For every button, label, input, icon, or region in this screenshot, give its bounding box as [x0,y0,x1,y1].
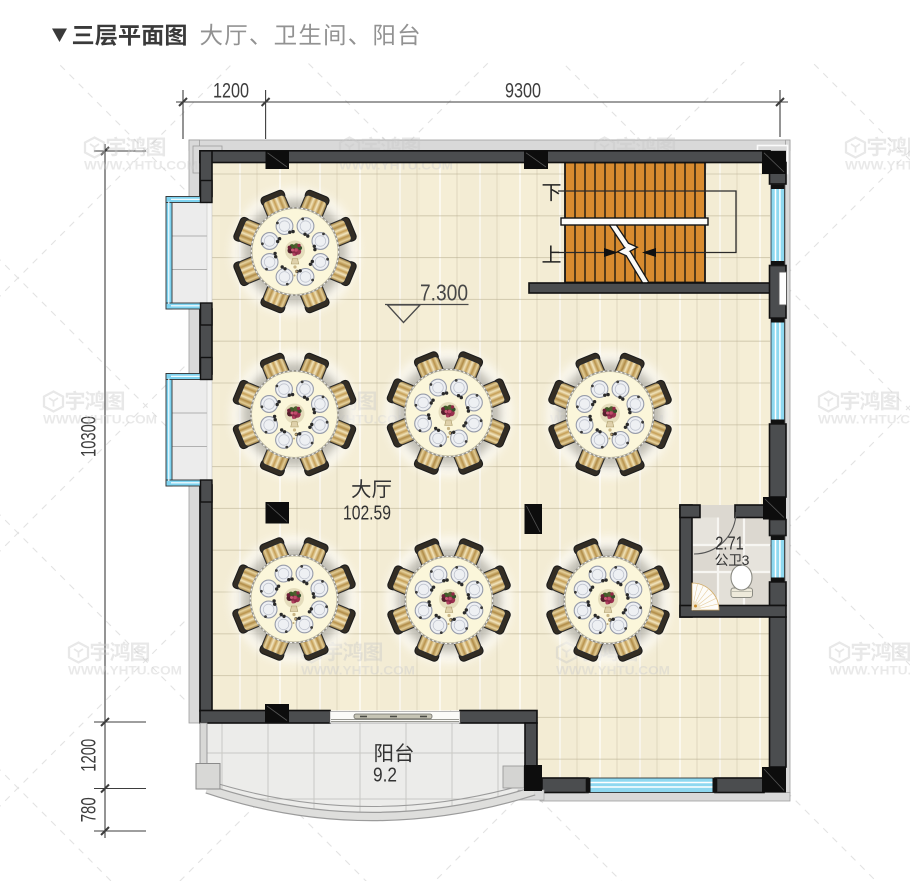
svg-text:9.2: 9.2 [373,765,397,787]
svg-text:9300: 9300 [505,80,541,103]
svg-text:102.59: 102.59 [343,503,391,525]
svg-text:1200: 1200 [78,739,101,772]
svg-text:1200: 1200 [213,80,249,103]
svg-text:2.71: 2.71 [715,534,744,554]
svg-text:3: 3 [742,552,750,568]
svg-text:7.300: 7.300 [420,280,468,306]
svg-text:780: 780 [78,797,101,822]
